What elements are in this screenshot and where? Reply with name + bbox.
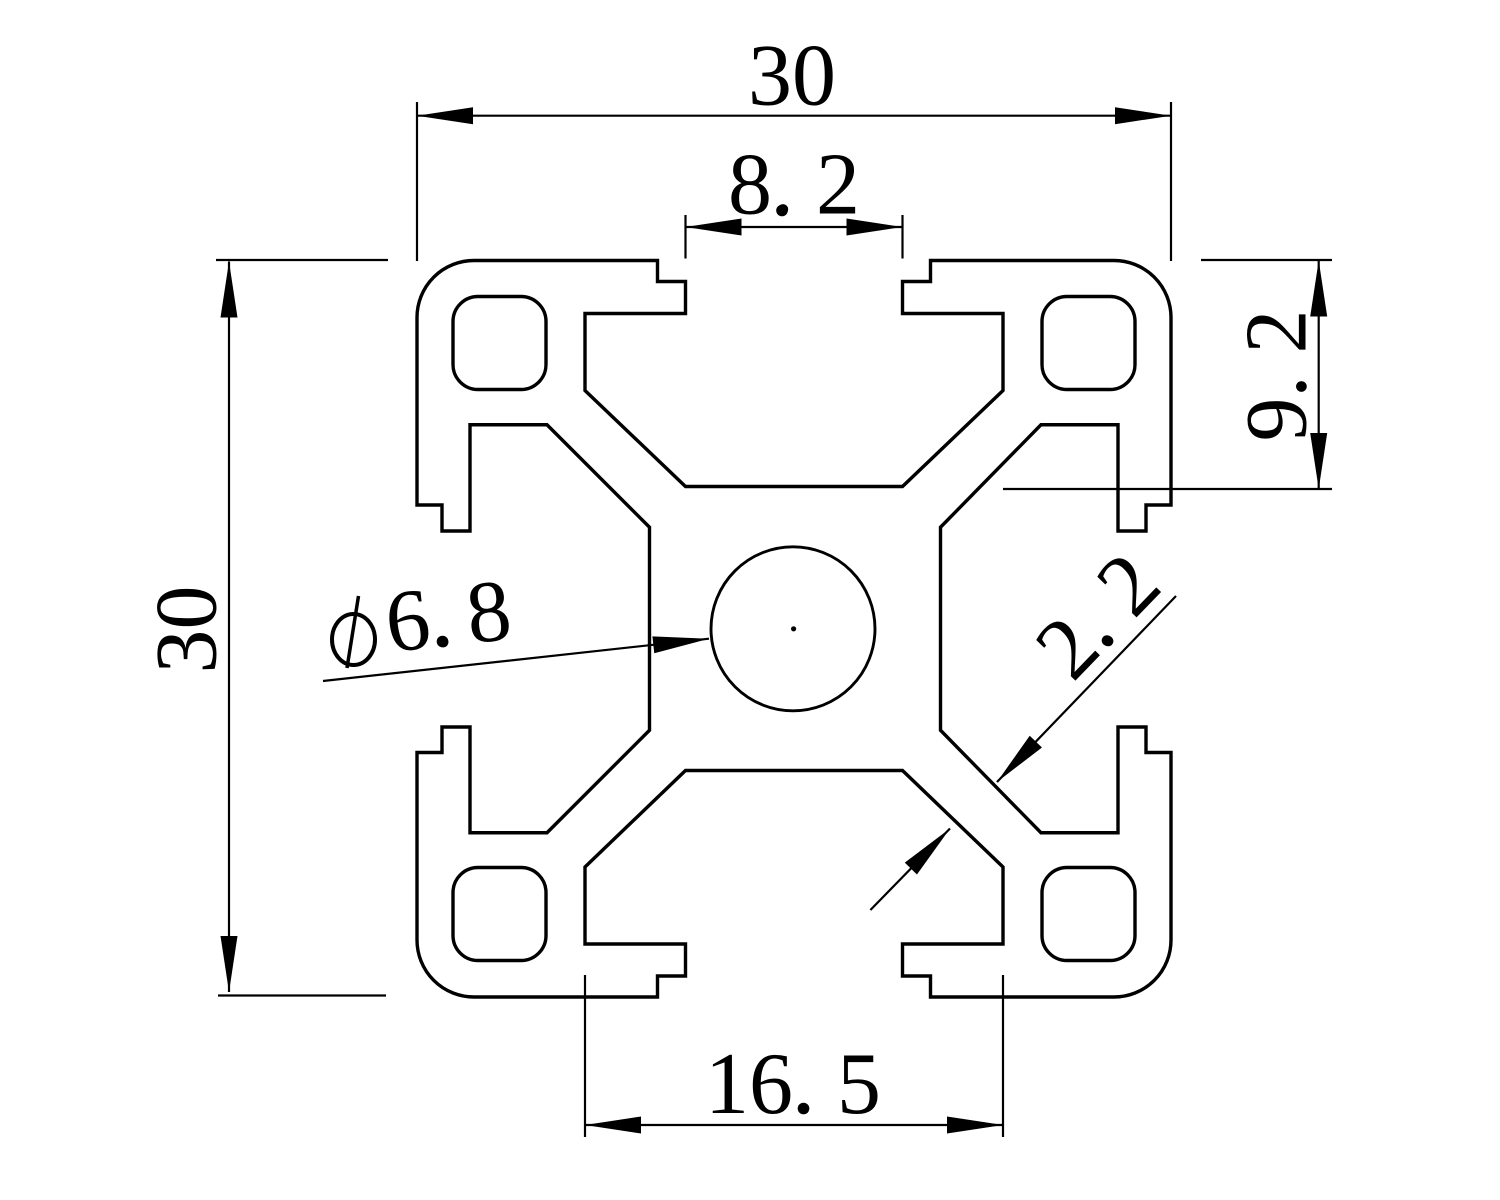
svg-text:30: 30 (748, 28, 836, 125)
svg-text:6. 8: 6. 8 (381, 562, 516, 672)
svg-text:9. 2: 9. 2 (1229, 310, 1326, 442)
svg-text:16. 5: 16. 5 (705, 1036, 881, 1133)
svg-text:8. 2: 8. 2 (728, 137, 860, 234)
svg-text:30: 30 (139, 586, 236, 674)
